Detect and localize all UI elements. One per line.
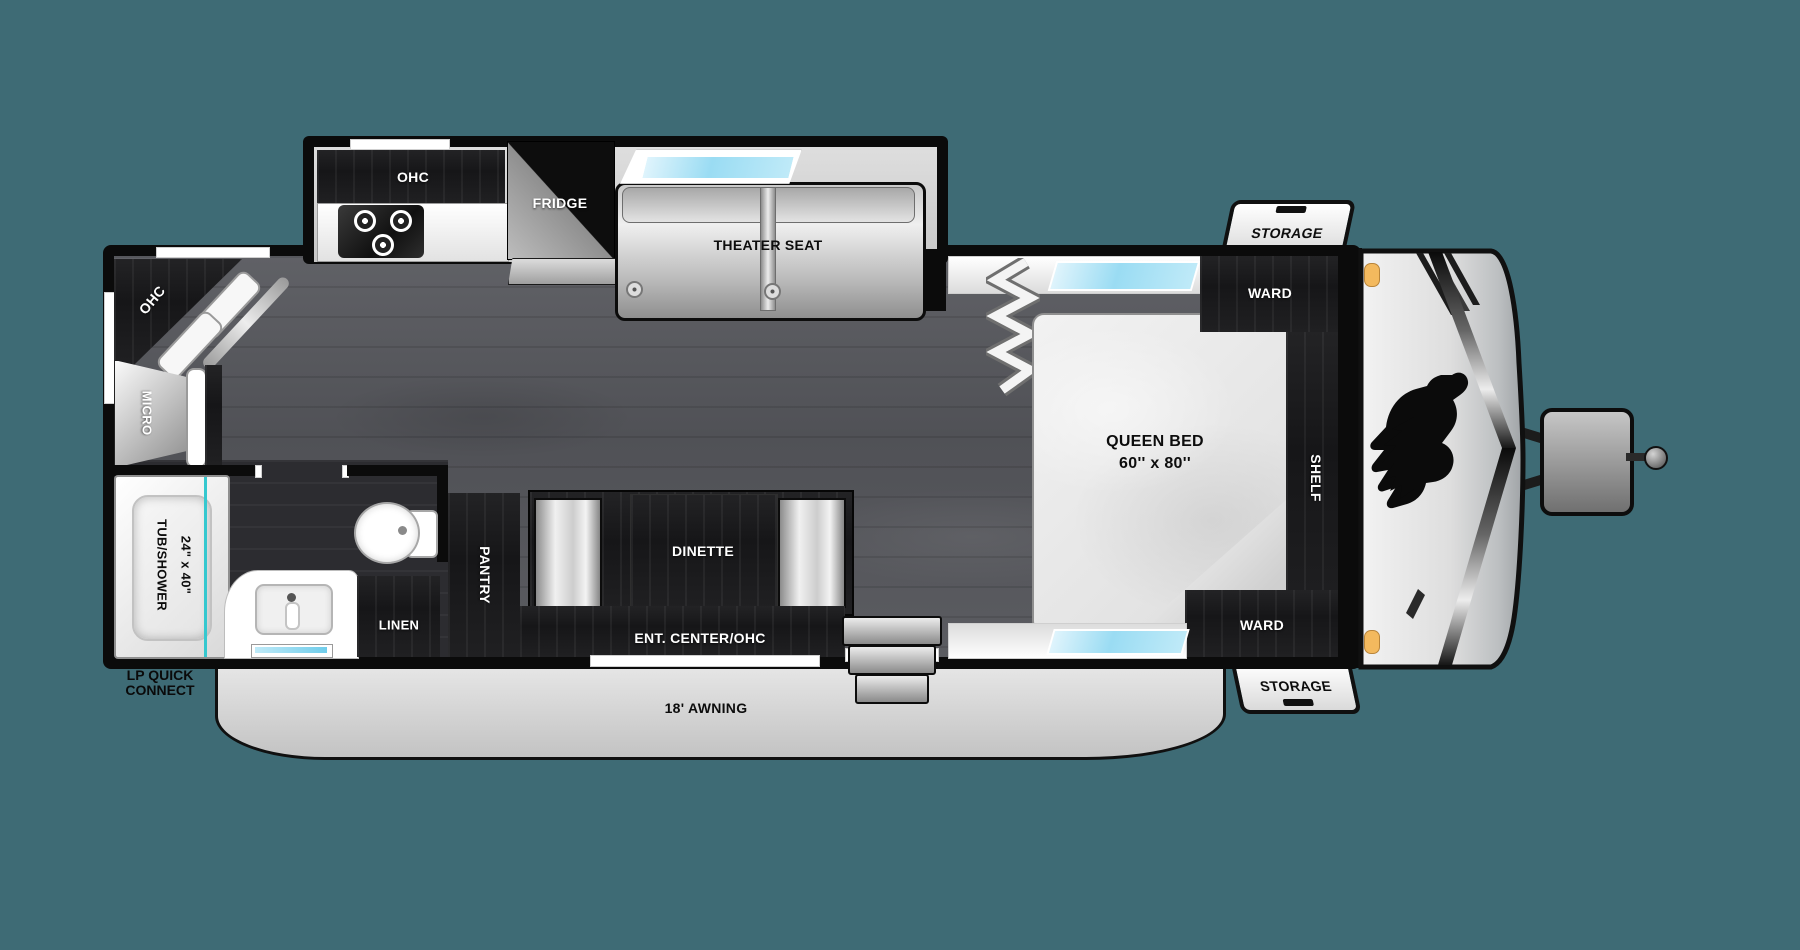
marker-icon: [1364, 630, 1380, 654]
hitch-jack-box: [1540, 408, 1634, 516]
tub-label: TUB/SHOWER: [155, 519, 170, 611]
theater-seat-label: THEATER SEAT: [714, 237, 823, 253]
marker-icon: [1364, 263, 1380, 287]
tub-accent-line: [204, 477, 207, 657]
burner-icon: [372, 234, 394, 256]
rear-seat-side: [205, 365, 222, 465]
toilet: [352, 500, 438, 564]
storage-top-label: STORAGE: [1250, 225, 1324, 241]
bathroom-door-jamb: [255, 465, 262, 478]
queen-bed-size-label: 60'' x 80'': [1119, 455, 1191, 473]
ward-bottom-label: WARD: [1240, 617, 1284, 633]
dinette-bench-left: [534, 498, 602, 608]
cupholder-icon: [764, 283, 781, 300]
cupholder-icon: [626, 281, 643, 298]
queen-bed-label: QUEEN BED: [1106, 433, 1204, 451]
slideout-end-wall: [924, 249, 946, 311]
kitchen-ohc-label: OHC: [397, 169, 429, 185]
rear-wall-window: [104, 292, 115, 404]
lp-line1: LP QUICK: [105, 668, 215, 683]
bottom-wall-window: [590, 655, 820, 667]
ent-center-label: ENT. CENTER/OHC: [634, 630, 765, 646]
storage-handle-icon: [1283, 699, 1314, 706]
awning-label: 18' AWNING: [665, 700, 748, 716]
dinette-label: DINETTE: [672, 543, 734, 559]
toilet-bowl: [354, 502, 420, 564]
faucet-handle-icon: [285, 602, 300, 630]
tub-size-label: 24" x 40": [179, 536, 194, 594]
ward-top-label: WARD: [1248, 285, 1292, 301]
tub-shower: [114, 475, 230, 659]
bathroom-window: [251, 644, 333, 658]
dinette-bench-right: [778, 498, 846, 608]
bedroom-top-window: [1048, 261, 1201, 291]
hitch-ball-icon: [1644, 446, 1668, 470]
rear-seat-arm: [186, 368, 207, 468]
slideout-top-window: [350, 139, 450, 150]
entry-step: [842, 616, 942, 646]
pantry-label: PANTRY: [477, 546, 493, 604]
lp-line2: CONNECT: [105, 683, 215, 698]
queen-bed: [1032, 313, 1290, 633]
lp-quick-connect-label: LP QUICK CONNECT: [105, 668, 215, 699]
front-cap: [1358, 243, 1530, 675]
storage-bottom-label: STORAGE: [1259, 678, 1333, 694]
shelf-label: SHELF: [1308, 454, 1324, 501]
linen-label: LINEN: [379, 618, 420, 633]
floorplan-diagram: 18' AWNING STORAGE STORAGE OHC FRIDGE: [0, 0, 1800, 950]
theater-window-frame: [620, 149, 802, 184]
bedroom-bottom-window: [1046, 629, 1189, 655]
fridge-label: FRIDGE: [533, 195, 588, 211]
theater-window-glass: [640, 155, 796, 180]
bathroom-window-glass: [255, 647, 327, 653]
top-wall-window-rear: [156, 247, 270, 258]
toilet-flush-icon: [398, 526, 407, 535]
micro-label: MICRO: [140, 391, 155, 436]
burner-icon: [390, 210, 412, 232]
entry-step: [855, 674, 929, 704]
entry-step: [848, 645, 936, 675]
faucet-icon: [287, 593, 296, 602]
storage-handle-icon: [1275, 206, 1306, 213]
burner-icon: [354, 210, 376, 232]
cooktop: [338, 205, 424, 258]
linen-closet: [357, 576, 440, 657]
toilet-partition-wall: [437, 476, 448, 562]
bathroom-wall-right: [347, 465, 448, 476]
fridge-ledge: [508, 258, 620, 285]
tub-well: [132, 495, 212, 641]
